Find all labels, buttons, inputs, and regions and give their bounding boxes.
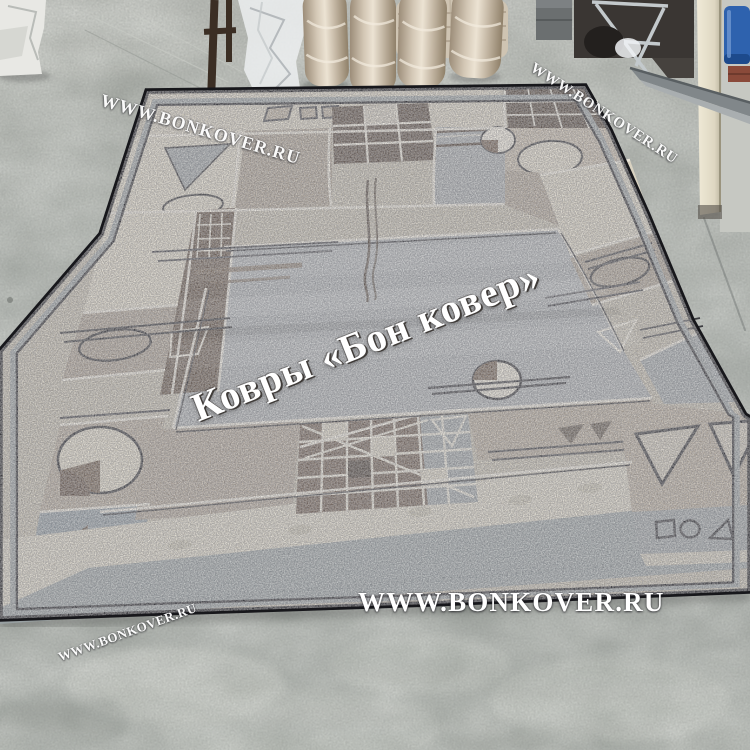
- carpet-roll-2: [350, 0, 396, 94]
- cinder-block: [536, 0, 572, 40]
- carpet-roll-4: [448, 0, 505, 79]
- watermark-bottom: WWW.BONKOVER.RU: [358, 587, 665, 618]
- wrapped-parcel: [0, 0, 46, 76]
- rug-product-photo: WWW.BONKOVER.RU WWW.BONKOVER.RU Ковры «Б…: [0, 0, 750, 750]
- carpet-roll-3: [397, 0, 448, 89]
- plastic-wrap-blob: [615, 38, 641, 58]
- carpet-roll-1: [302, 0, 349, 87]
